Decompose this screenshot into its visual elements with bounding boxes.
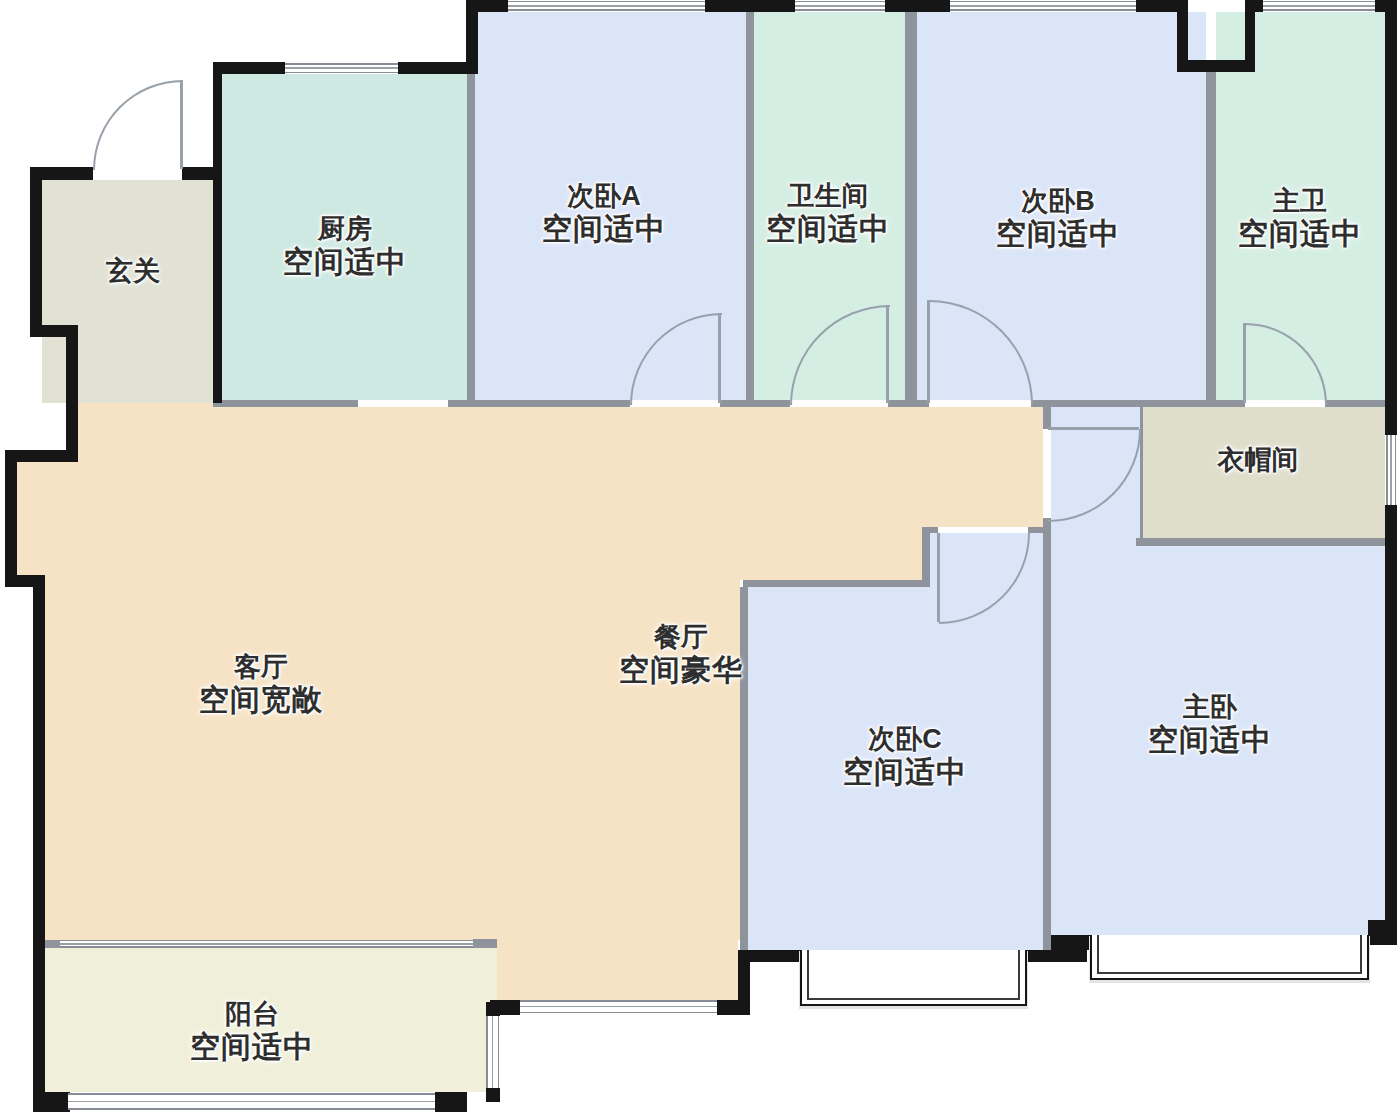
window-balcony-bottom [68, 1093, 435, 1110]
window-closet-right [1386, 435, 1396, 505]
living-floor-2 [17, 455, 740, 587]
masterbath-note: 空间适中 [1238, 217, 1362, 252]
wall-right-upper [1385, 12, 1397, 435]
living-name: 客厅 [199, 652, 323, 683]
bedroom-c-note: 空间适中 [843, 755, 967, 790]
wall-corridor-1 [213, 400, 358, 407]
master-name: 主卧 [1148, 692, 1272, 723]
bedroom-b-name: 次卧B [996, 186, 1120, 217]
room-label-entry: 玄关 [106, 256, 160, 287]
wall-top-2 [705, 0, 795, 12]
masterbath-name: 主卫 [1238, 186, 1362, 217]
living-note: 空间宽敞 [199, 683, 323, 718]
wall-master-bottom-left [1051, 935, 1090, 950]
balcony-note: 空间适中 [190, 1030, 314, 1065]
wall-top-1 [466, 0, 508, 12]
wall-bedroomC-master [1043, 518, 1051, 950]
window-bathroom [795, 1, 885, 11]
wall-corridor-5 [1031, 400, 1245, 407]
wall-corridor-6 [1325, 400, 1385, 407]
living-floor-1 [78, 403, 740, 455]
room-label-closet: 衣帽间 [1218, 445, 1299, 476]
opening-kitchen [358, 400, 448, 407]
wall-notch-bottom [1177, 60, 1255, 72]
wall-kitchen-bedroomA-black [466, 12, 478, 74]
door-leaf-entry [180, 80, 183, 169]
bay-window-bedroomC [800, 950, 1027, 1006]
wall-bedroomC-bottom-1 [750, 950, 800, 962]
room-label-master: 主卧 空间适中 [1148, 692, 1272, 758]
room-label-kitchen: 厨房 空间适中 [283, 214, 407, 280]
wall-balcony-corner-left [33, 1092, 70, 1112]
wall-bedroomA-bathroom [746, 12, 754, 400]
wall-left-4 [33, 587, 45, 1095]
wall-living-window-corner-right [717, 1000, 750, 1015]
wall-balcony-right-cap-top [486, 1002, 500, 1016]
wall-corridor-3 [720, 400, 790, 407]
wall-entry-kitchen [213, 62, 222, 403]
room-label-bathroom: 卫生间 空间适中 [766, 181, 890, 247]
wall-bedroomB-masterbath [1206, 70, 1216, 400]
room-label-bedroom-a: 次卧A 空间适中 [542, 181, 666, 247]
wall-kitchen-top-2 [398, 62, 466, 74]
floor-plan: 玄关 厨房 空间适中 次卧A 空间适中 卫生间 空间适中 次卧B 空间适中 主卫… [0, 0, 1400, 1118]
entry-name: 玄关 [106, 256, 160, 287]
wall-balcony-right-cap-bottom [486, 1088, 500, 1102]
door-arc-entry [93, 80, 183, 170]
living-floor-4 [497, 940, 738, 1000]
room-label-bedroom-c: 次卧C 空间适中 [843, 724, 967, 790]
window-bedroomA [508, 1, 705, 11]
dining-floor-2 [922, 407, 1043, 527]
master-note: 空间适中 [1148, 723, 1272, 758]
balcony-slider-end-right [473, 939, 497, 948]
wall-dining-bedroomC-h [743, 580, 922, 587]
wall-right-lower [1385, 505, 1397, 945]
door-leaf-bedroomC [937, 533, 940, 622]
window-kitchen [285, 63, 398, 73]
dining-name: 餐厅 [619, 622, 743, 653]
window-living-bottom [520, 1000, 717, 1013]
kitchen-name: 厨房 [283, 214, 407, 245]
wall-notch-right [1245, 12, 1255, 60]
wall-left-2 [66, 337, 78, 455]
wall-top-5 [1245, 0, 1263, 12]
wall-top-corner-right [1375, 0, 1397, 12]
balcony-name: 阳台 [190, 999, 314, 1030]
wall-top-4 [1136, 0, 1188, 12]
door-leaf-master-hall [1048, 427, 1139, 430]
wall-left-step-3 [5, 575, 45, 587]
bathroom-note: 空间适中 [766, 212, 890, 247]
wall-kitchen-top-1 [213, 62, 285, 74]
bedroom-c-name: 次卧C [843, 724, 967, 755]
door-leaf-bedroomA [718, 313, 721, 403]
wall-left-step-1 [30, 325, 78, 337]
room-label-dining: 餐厅 空间豪华 [619, 622, 743, 688]
wall-balcony-corner-right [435, 1092, 467, 1112]
wall-left-step-2 [5, 450, 78, 462]
balcony-slider-window [60, 940, 473, 948]
wall-bedroomC-bottom-2 [1023, 950, 1087, 962]
wall-dining-bedroomC-v [922, 527, 930, 587]
wall-kitchen-bedroomA [467, 74, 475, 400]
wall-entry-top-right [182, 167, 213, 180]
bathroom-name: 卫生间 [766, 181, 890, 212]
door-leaf-bedroomB [927, 300, 930, 403]
wall-top-3 [885, 0, 950, 12]
bedroom-b-note: 空间适中 [996, 217, 1120, 252]
kitchen-note: 空间适中 [283, 245, 407, 280]
balcony-slider-end-left [45, 940, 60, 948]
bedroom-a-note: 空间适中 [542, 212, 666, 247]
bedroom-a-name: 次卧A [542, 181, 666, 212]
wall-corridor-4 [888, 400, 929, 407]
window-bedroomB [950, 1, 1136, 11]
bay-window-master [1090, 935, 1369, 980]
wall-bathroom-bedroomB [905, 12, 917, 402]
room-label-masterbath: 主卫 空间适中 [1238, 186, 1362, 252]
wall-hall-stub [1043, 407, 1051, 429]
room-label-bedroom-b: 次卧B 空间适中 [996, 186, 1120, 252]
door-leaf-bathroom [886, 305, 889, 403]
closet-name: 衣帽间 [1218, 445, 1299, 476]
wall-corridor-2 [448, 400, 630, 407]
dining-floor-1 [740, 407, 922, 580]
wall-closet-left [1140, 407, 1143, 538]
wall-closet-bottom [1136, 538, 1385, 546]
window-masterbath [1263, 1, 1375, 11]
dining-note: 空间豪华 [619, 653, 743, 688]
room-label-balcony: 阳台 空间适中 [190, 999, 314, 1065]
wall-left-3 [5, 462, 17, 577]
door-leaf-masterbath [1243, 323, 1246, 403]
room-label-living: 客厅 空间宽敞 [199, 652, 323, 718]
wall-right-bottom-corner [1368, 920, 1397, 945]
wall-left-1 [30, 167, 42, 337]
window-balcony-right [486, 1016, 499, 1088]
